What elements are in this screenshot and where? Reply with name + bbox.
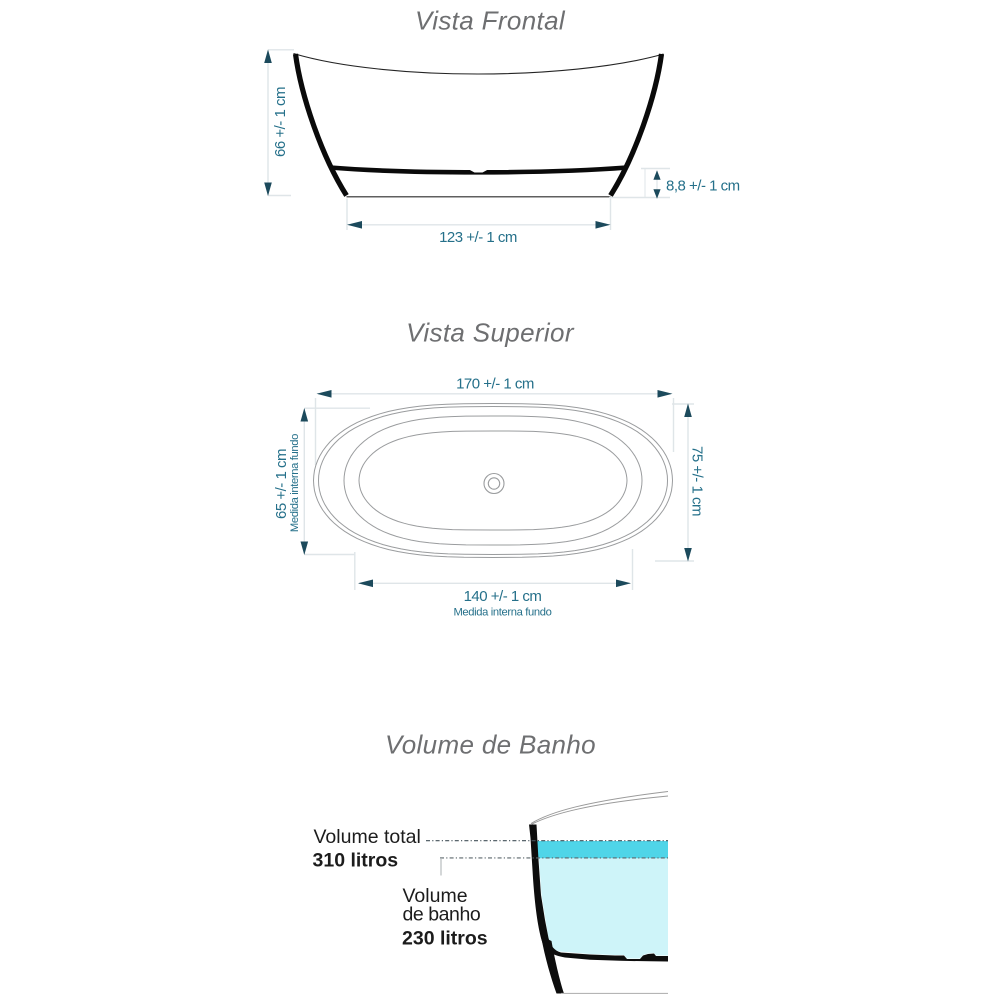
svg-text:230 litros: 230 litros (402, 928, 488, 950)
svg-text:310 litros: 310 litros (313, 850, 399, 872)
svg-text:65 +/- 1 cm: 65 +/- 1 cm (273, 449, 290, 519)
svg-text:Vista Superior: Vista Superior (406, 318, 575, 348)
svg-text:Vista Frontal: Vista Frontal (415, 6, 566, 36)
svg-text:8,8 +/- 1 cm: 8,8 +/- 1 cm (666, 178, 740, 195)
svg-text:75 +/- 1 cm: 75 +/- 1 cm (689, 446, 706, 516)
svg-text:Volume de Banho: Volume de Banho (385, 730, 596, 760)
svg-text:de banho: de banho (403, 904, 481, 926)
svg-text:Medida interna fundo: Medida interna fundo (453, 607, 551, 619)
svg-text:Volume total: Volume total (314, 826, 421, 848)
svg-text:170 +/- 1 cm: 170 +/- 1 cm (456, 376, 534, 393)
svg-text:66 +/- 1 cm: 66 +/- 1 cm (272, 87, 289, 157)
svg-text:140 +/- 1 cm: 140 +/- 1 cm (464, 588, 542, 605)
svg-text:Medida interna fundo: Medida interna fundo (289, 434, 301, 532)
svg-text:123 +/- 1 cm: 123 +/- 1 cm (439, 229, 517, 246)
